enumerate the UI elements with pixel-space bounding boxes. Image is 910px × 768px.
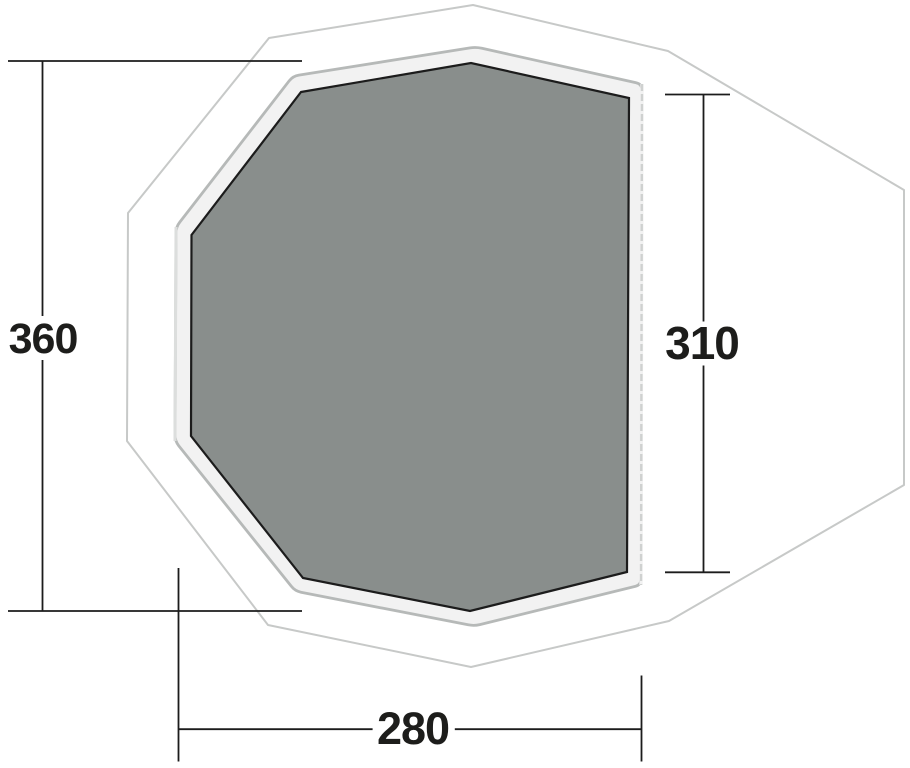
svg-text:360: 360 bbox=[9, 315, 78, 363]
svg-text:280: 280 bbox=[377, 703, 449, 754]
svg-text:310: 310 bbox=[665, 317, 739, 369]
